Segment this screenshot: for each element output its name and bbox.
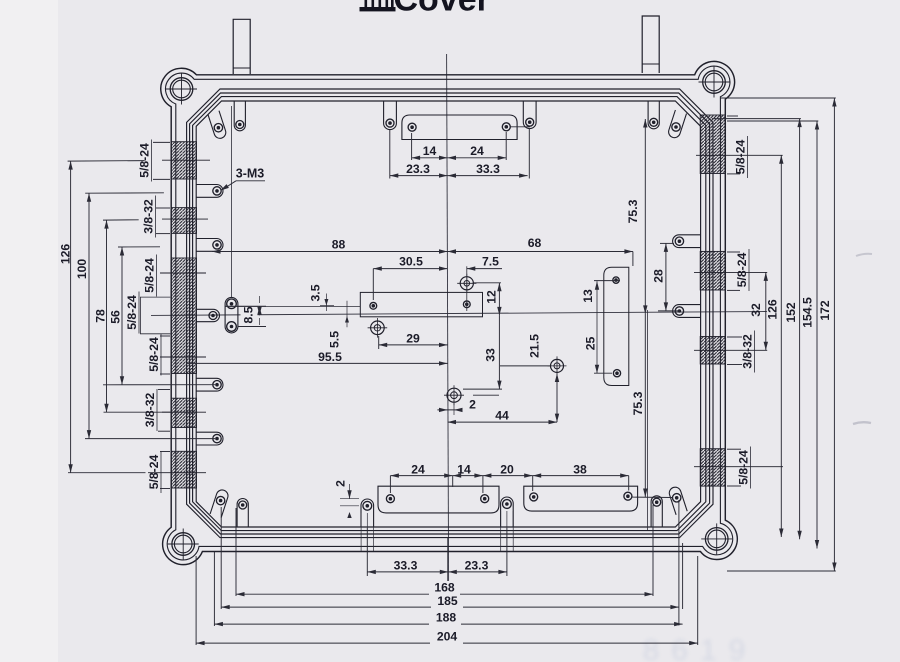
svg-text:75.3: 75.3 [631,391,645,415]
svg-text:33.3: 33.3 [394,559,418,573]
svg-text:3/8-32: 3/8-32 [143,393,157,428]
svg-text:23.3: 23.3 [406,162,430,176]
svg-text:5/8-24: 5/8-24 [125,295,139,330]
svg-text:188: 188 [436,611,457,625]
svg-text:5/8-24: 5/8-24 [147,337,161,372]
svg-text:8.5: 8.5 [242,306,256,323]
svg-text:30.5: 30.5 [399,255,423,269]
svg-text:168: 168 [434,581,455,595]
svg-text:88: 88 [332,238,346,252]
svg-text:29: 29 [406,332,420,346]
svg-text:12: 12 [485,290,499,304]
svg-text:Cover: Cover [394,0,490,19]
svg-text:154.5: 154.5 [801,297,815,328]
svg-text:100: 100 [75,259,89,280]
svg-text:13: 13 [581,289,595,303]
svg-text:8619: 8619 [643,634,758,662]
svg-text:75.3: 75.3 [626,199,640,223]
svg-text:14: 14 [423,144,437,158]
svg-text:32: 32 [749,303,763,317]
svg-text:7.5: 7.5 [482,255,499,269]
svg-text:3/8-32: 3/8-32 [142,199,156,234]
svg-text:5/8-24: 5/8-24 [735,253,749,288]
svg-text:78: 78 [94,309,108,323]
svg-text:152: 152 [784,302,798,323]
svg-text:2: 2 [469,398,476,412]
svg-text:185: 185 [437,594,458,608]
svg-text:44: 44 [495,409,509,423]
svg-text:126: 126 [766,299,780,320]
svg-text:2: 2 [334,480,348,487]
svg-text:95.5: 95.5 [318,350,342,364]
svg-text:5.5: 5.5 [328,331,342,348]
svg-text:3-M3: 3-M3 [236,167,265,181]
svg-text:33: 33 [484,348,498,362]
svg-text:24: 24 [411,463,425,477]
svg-text:5/8-24: 5/8-24 [138,143,152,178]
svg-text:56: 56 [109,310,123,324]
svg-text:23.3: 23.3 [465,559,489,573]
svg-text:5/8-24: 5/8-24 [737,450,751,485]
svg-text:68: 68 [528,236,542,250]
svg-text:33.3: 33.3 [476,162,500,176]
svg-text:172: 172 [818,300,832,321]
svg-text:28: 28 [652,269,666,283]
svg-text:3/8-32: 3/8-32 [741,334,755,369]
svg-text:5/8-24: 5/8-24 [143,258,157,293]
svg-text:25: 25 [584,337,598,351]
svg-text:38: 38 [573,463,587,477]
svg-text:5/8-24: 5/8-24 [147,455,161,490]
svg-text:204: 204 [437,630,458,644]
svg-text:24: 24 [470,144,484,158]
svg-text:20: 20 [500,463,514,477]
svg-text:5/8-24: 5/8-24 [734,140,748,175]
svg-text:3.5: 3.5 [309,284,323,301]
svg-text:21.5: 21.5 [528,334,542,358]
